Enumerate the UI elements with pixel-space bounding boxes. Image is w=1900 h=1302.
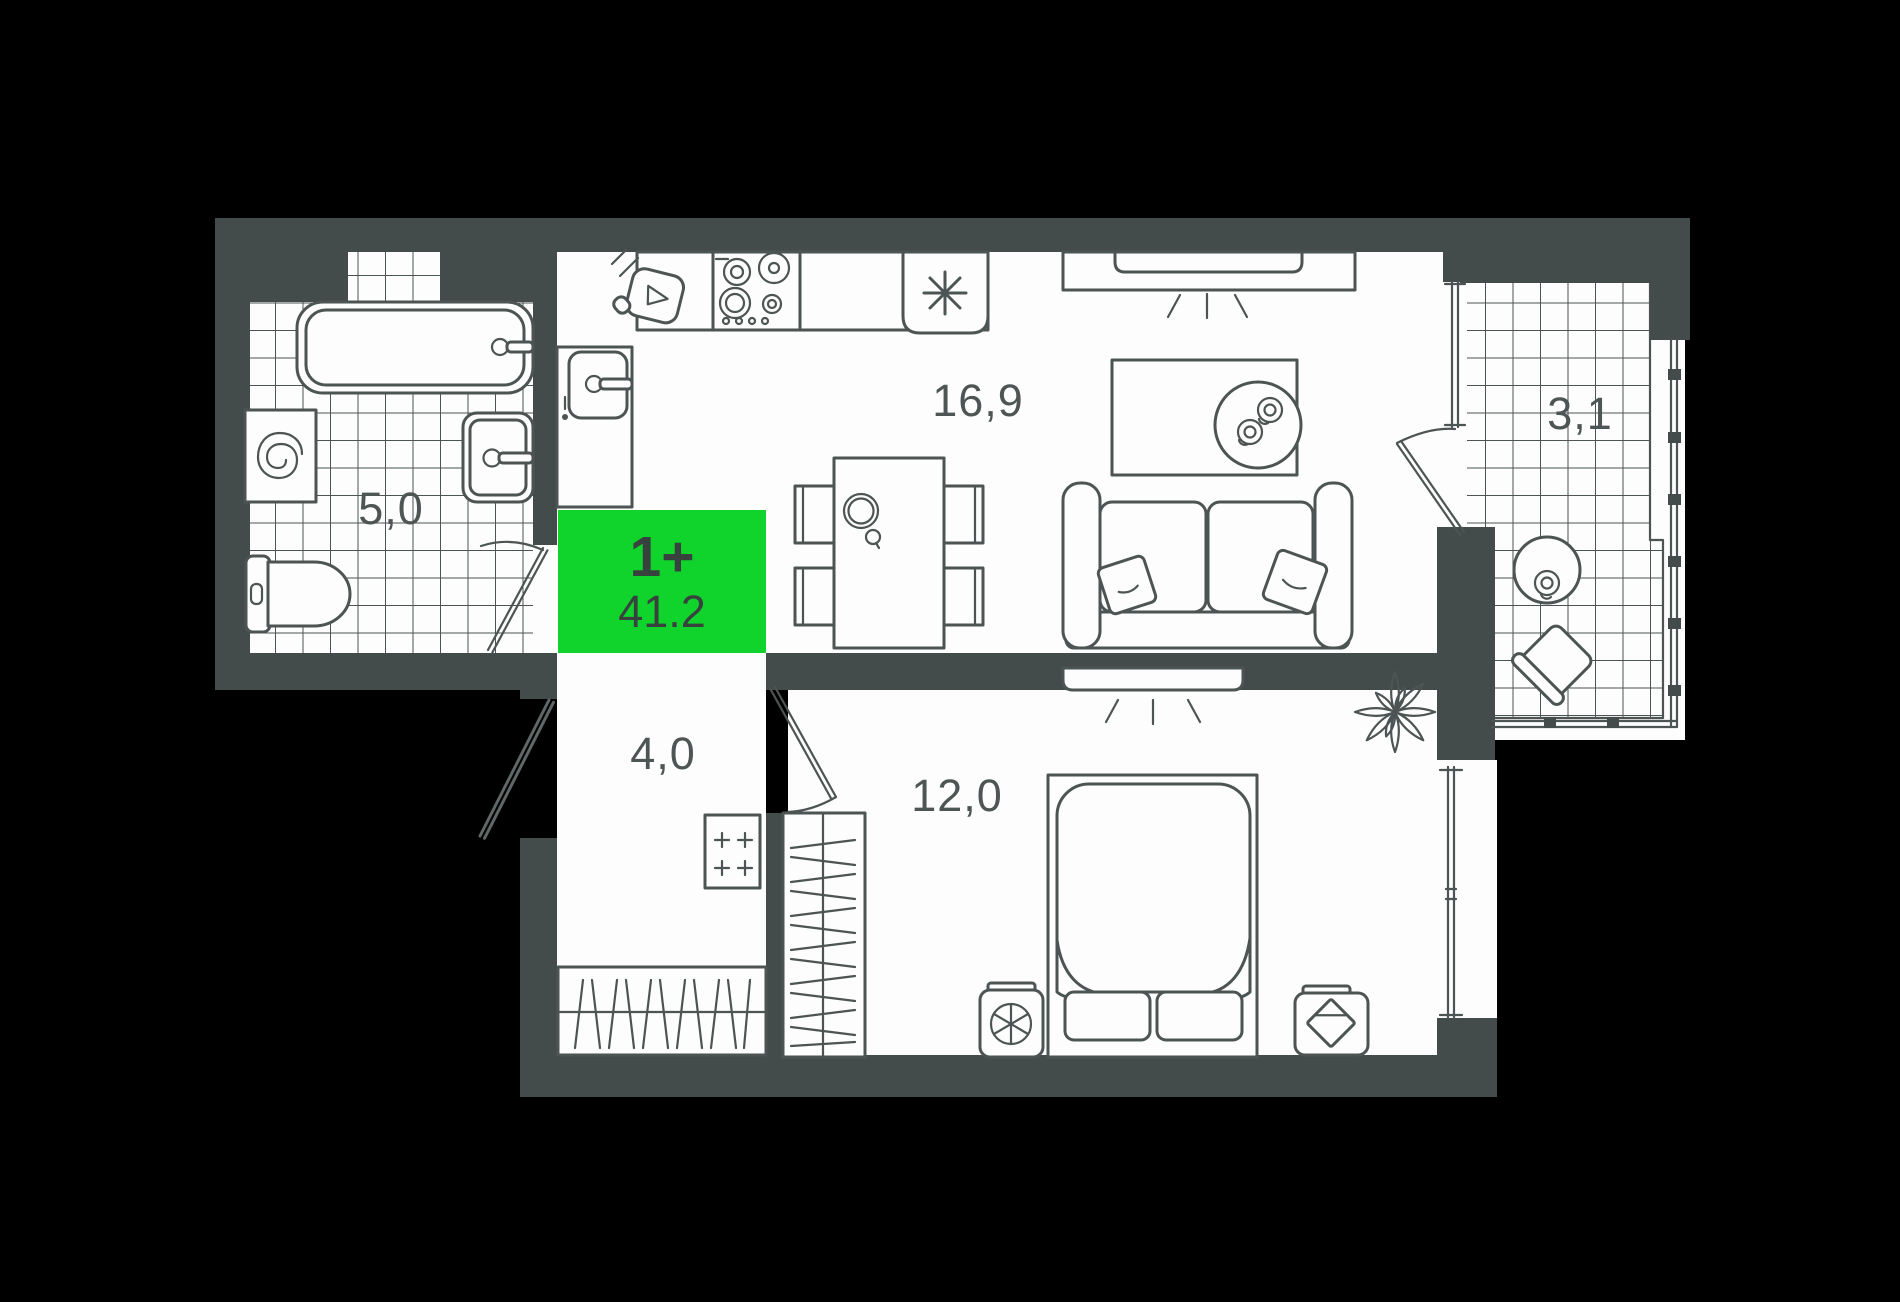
fridge-icon — [903, 252, 988, 333]
floor-plan-drawing — [0, 0, 1900, 1302]
apartment-type-badge: 1+ 41.2 — [558, 510, 766, 653]
nightstand-fan-icon — [980, 983, 1043, 1057]
electrical-panel-icon — [705, 815, 760, 888]
hallway-area-label: 4,0 — [630, 728, 696, 780]
entry-closet-icon — [558, 967, 766, 1055]
washing-machine-icon — [245, 410, 316, 502]
apartment-total-area: 41.2 — [618, 589, 706, 635]
bedroom-area-label: 12,0 — [911, 770, 1003, 822]
apartment-type-label: 1+ — [630, 528, 695, 586]
kitchen-living-area-label: 16,9 — [932, 375, 1024, 427]
bathtub-icon — [297, 302, 533, 393]
balcony-area-label: 3,1 — [1547, 388, 1613, 440]
nightstand-book-icon — [1295, 986, 1368, 1055]
bed-icon — [1048, 775, 1257, 1057]
toilet-icon — [246, 556, 350, 632]
bathroom-area-label: 5,0 — [358, 483, 424, 535]
bathroom-sink-icon — [463, 413, 533, 502]
floor-plan-canvas: 5,0 16,9 3,1 4,0 12,0 1+ 41.2 — [0, 0, 1900, 1302]
balcony-table-icon — [1514, 537, 1580, 603]
kitchen-sink-icon — [557, 347, 632, 507]
coffee-table-icon — [1215, 382, 1301, 468]
wardrobe-icon — [783, 813, 865, 1057]
entrance-door-icon — [480, 700, 554, 838]
